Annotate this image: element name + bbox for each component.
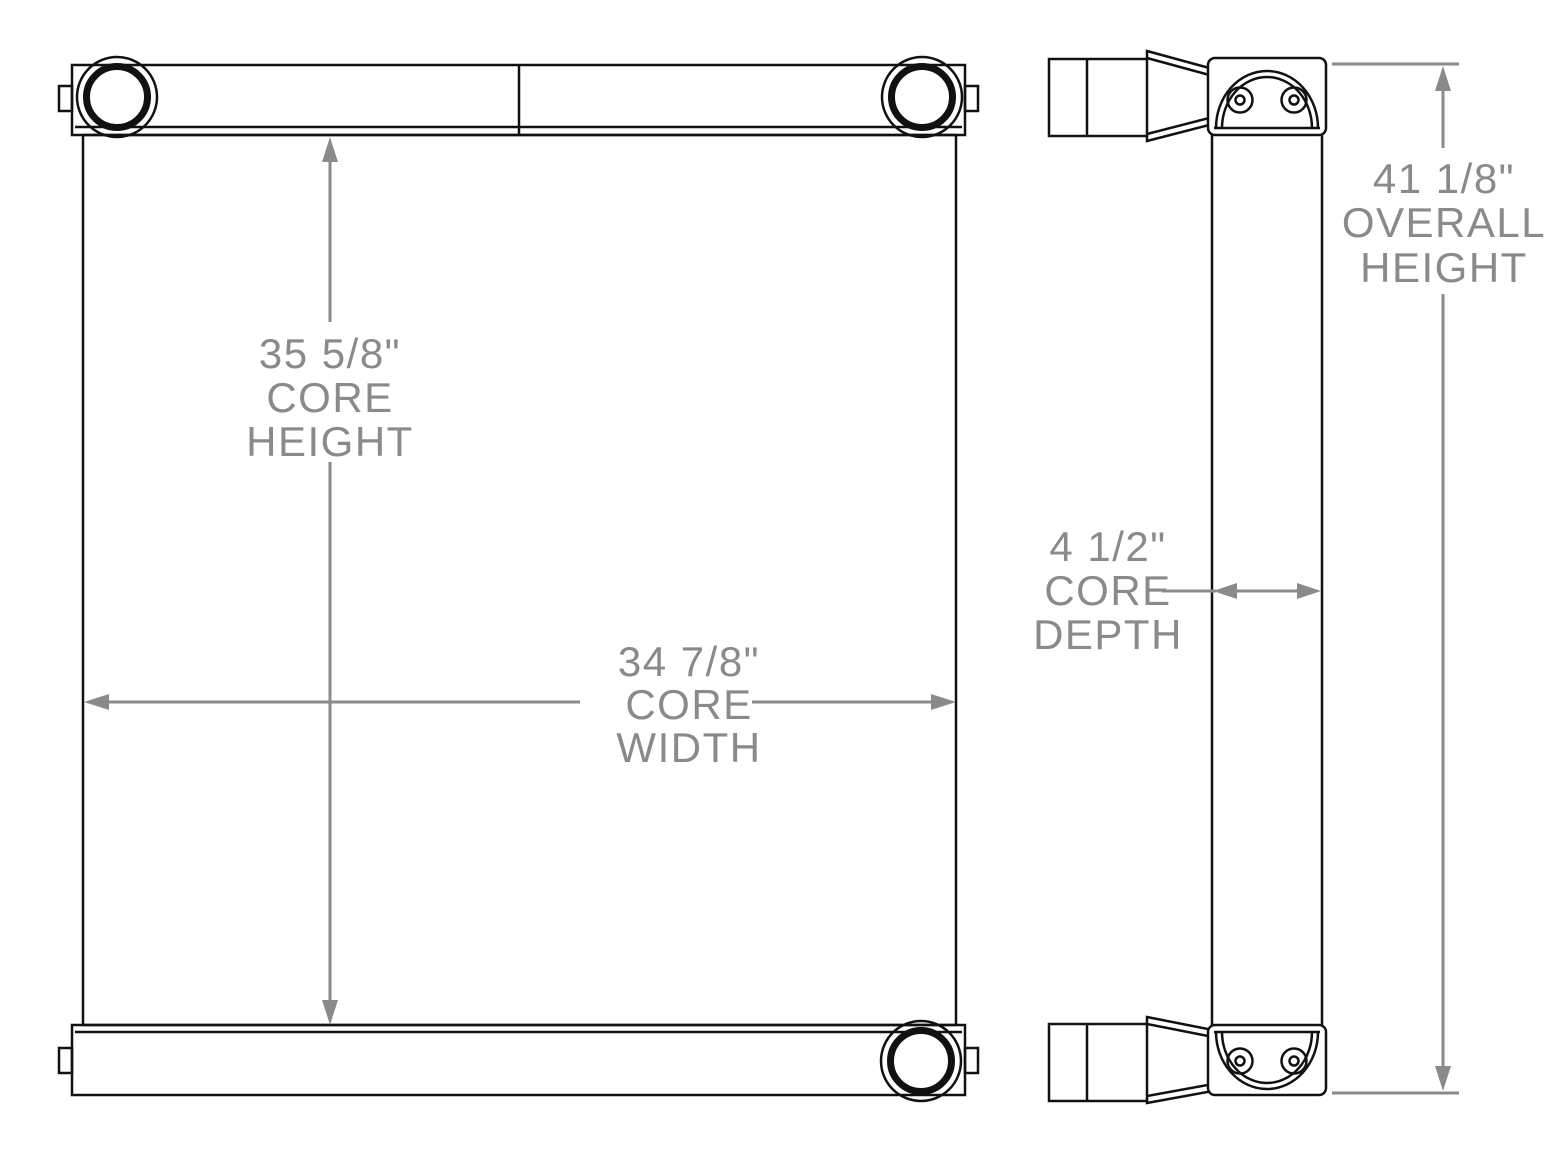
top-strap-upper	[1147, 51, 1213, 76]
arrow-right-icon	[1297, 583, 1321, 599]
arrow-down-icon	[1435, 1066, 1451, 1091]
bottom-strap-lower	[1147, 1084, 1213, 1103]
dimension-core-width: 34 7/8" CORE WIDTH	[84, 638, 956, 771]
front-view	[59, 57, 978, 1101]
dimension-drawing: 35 5/8" CORE HEIGHT 34 7/8" CORE WIDTH 4…	[0, 0, 1554, 1160]
dimension-core-depth: 4 1/2" CORE DEPTH	[1033, 523, 1321, 658]
core-face	[83, 135, 956, 1025]
top-tank-left-tab	[59, 86, 72, 111]
dimension-core-height: 35 5/8" CORE HEIGHT	[246, 137, 414, 1025]
bottom-tank	[59, 1025, 978, 1095]
bottom-strap-upper	[1147, 1017, 1213, 1037]
core-depth-label-2: DEPTH	[1033, 611, 1183, 658]
bottom-tank-left-tab	[59, 1048, 72, 1073]
top-tank	[59, 65, 978, 135]
port-top-left	[77, 57, 157, 137]
port-ring	[87, 67, 148, 128]
side-top-assembly	[1049, 51, 1326, 141]
arrow-right-icon	[931, 694, 956, 710]
bottom-tank-body	[72, 1025, 965, 1095]
port-ring	[891, 1031, 952, 1092]
core-width-label-2: WIDTH	[616, 724, 761, 771]
top-tank-right-tab	[965, 86, 978, 111]
core-width-value: 34 7/8"	[618, 638, 760, 685]
core-height-label-2: HEIGHT	[246, 418, 414, 465]
core-depth-value: 4 1/2"	[1049, 523, 1166, 570]
core-height-label-1: CORE	[266, 374, 393, 421]
overall-height-value: 41 1/8"	[1373, 155, 1515, 202]
overall-height-label-1: OVERALL	[1342, 199, 1546, 246]
port-top-right	[882, 57, 962, 137]
side-bottom-port	[1049, 1024, 1147, 1101]
port-ring	[892, 67, 953, 128]
bottom-tank-right-tab	[965, 1048, 978, 1073]
core-depth-label-1: CORE	[1044, 567, 1171, 614]
side-top-port	[1049, 59, 1147, 136]
core-height-value: 35 5/8"	[259, 330, 401, 377]
dimension-drawing-canvas: 35 5/8" CORE HEIGHT 34 7/8" CORE WIDTH 4…	[0, 0, 1554, 1160]
arrow-down-icon	[322, 1000, 338, 1025]
port-bottom-right	[881, 1021, 961, 1101]
side-bottom-assembly	[1049, 1017, 1326, 1103]
dimension-overall-height: 41 1/8" OVERALL HEIGHT	[1332, 64, 1546, 1093]
overall-height-label-2: HEIGHT	[1360, 244, 1528, 291]
top-strap-lower	[1147, 117, 1213, 141]
arrow-left-icon	[1213, 583, 1237, 599]
side-bottom-cap	[1208, 1025, 1326, 1095]
core-width-label-1: CORE	[625, 681, 752, 728]
